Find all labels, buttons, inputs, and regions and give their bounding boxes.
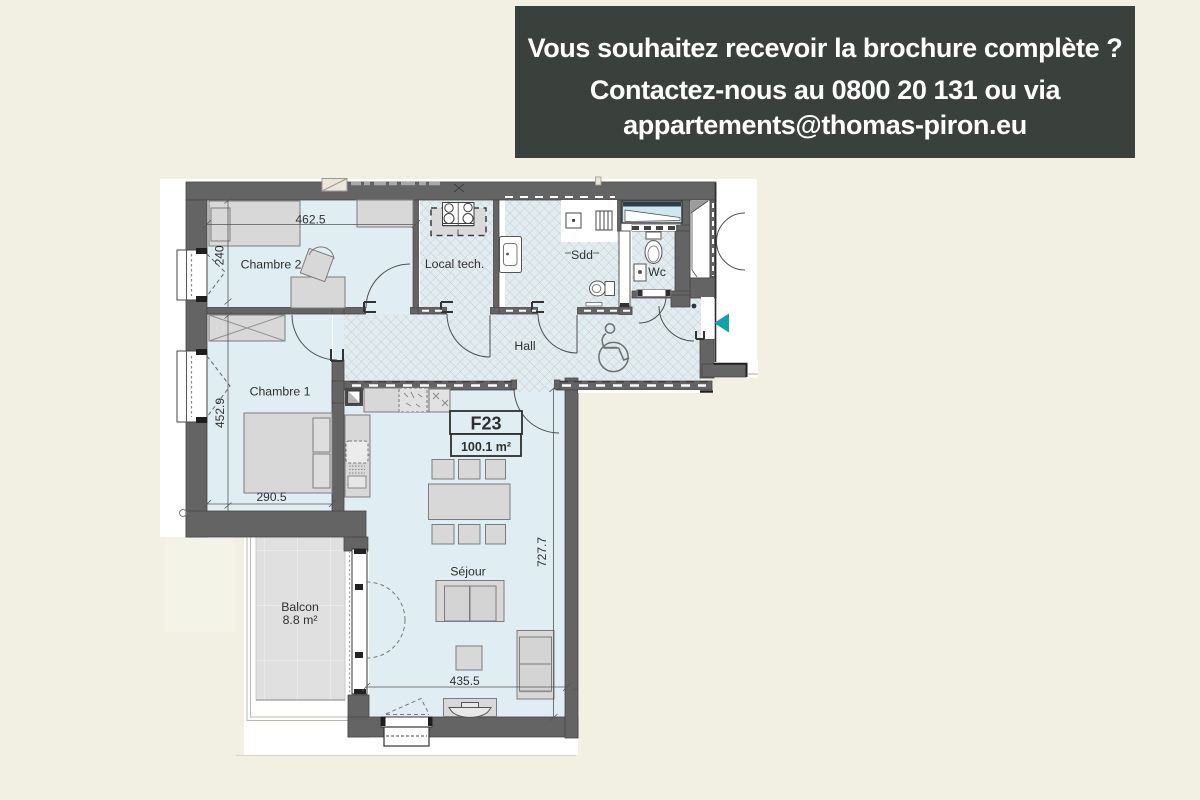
svg-text:435.5: 435.5: [450, 674, 480, 688]
svg-text:F23: F23: [470, 414, 501, 434]
svg-text:Hall: Hall: [514, 339, 535, 353]
svg-text:Sdd: Sdd: [571, 248, 593, 262]
svg-text:727.7: 727.7: [535, 537, 549, 567]
svg-text:452.9: 452.9: [213, 398, 227, 428]
svg-text:462.5: 462.5: [295, 213, 325, 227]
svg-text:Chambre 2: Chambre 2: [241, 258, 302, 272]
svg-text:Wc: Wc: [648, 265, 666, 279]
svg-text:Local tech.: Local tech.: [425, 257, 484, 271]
svg-text:Séjour: Séjour: [450, 565, 486, 579]
svg-text:240: 240: [213, 245, 227, 265]
svg-text:290.5: 290.5: [256, 490, 286, 504]
svg-text:100.1 m²: 100.1 m²: [461, 440, 511, 454]
svg-text:Chambre 1: Chambre 1: [250, 385, 311, 399]
svg-text:8.8 m²: 8.8 m²: [283, 613, 318, 627]
svg-text:Balcon: Balcon: [281, 600, 319, 614]
